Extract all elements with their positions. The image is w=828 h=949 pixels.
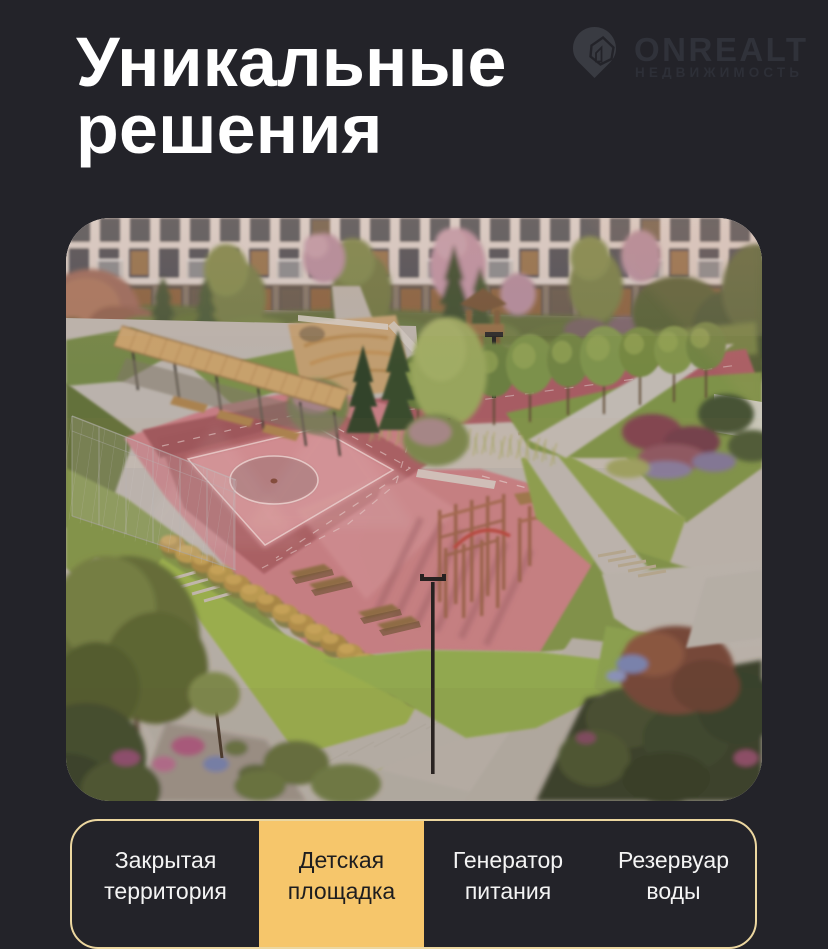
svg-text:НЕДВИЖИМОСТЬ: НЕДВИЖИМОСТЬ	[635, 65, 803, 79]
svg-text:ONREALT: ONREALT	[634, 31, 809, 68]
